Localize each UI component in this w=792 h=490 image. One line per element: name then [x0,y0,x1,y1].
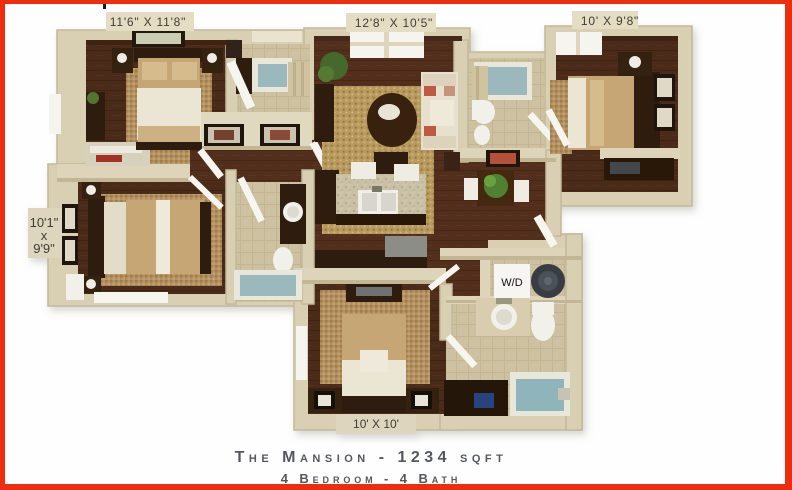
svg-text:10' X 9'8": 10' X 9'8" [581,14,639,28]
svg-text:The Mansion - 1234 sqft: The Mansion - 1234 sqft [235,449,508,466]
svg-text:11'6" X 11'8": 11'6" X 11'8" [110,15,186,29]
svg-text:10' X 10': 10' X 10' [353,417,399,431]
svg-text:9'9": 9'9" [33,241,55,256]
svg-text:4 Bedroom - 4 Bath: 4 Bedroom - 4 Bath [281,471,462,486]
svg-text:12'8" X 10'5": 12'8" X 10'5" [355,16,433,30]
svg-text:W/D: W/D [501,277,522,289]
